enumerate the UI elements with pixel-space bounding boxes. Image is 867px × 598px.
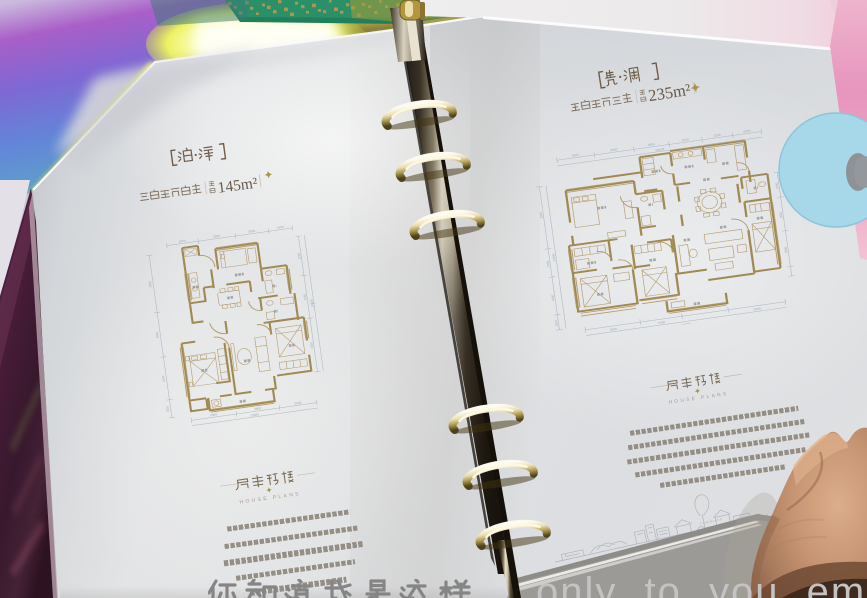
svg-text:3600: 3600 — [213, 234, 221, 239]
svg-text:3300: 3300 — [658, 320, 666, 325]
svg-text:1800: 1800 — [647, 142, 655, 147]
svg-text:3000: 3000 — [210, 412, 218, 417]
svg-text:2050: 2050 — [743, 129, 751, 134]
svg-text:4000: 4000 — [609, 327, 617, 332]
svg-text:235m²: 235m² — [647, 80, 692, 105]
svg-text:2050: 2050 — [178, 239, 186, 244]
svg-text:10500: 10500 — [250, 412, 260, 417]
svg-text:3600: 3600 — [294, 401, 302, 406]
svg-text:3050: 3050 — [155, 331, 160, 338]
svg-text:4430: 4430 — [161, 375, 166, 382]
svg-text:2150: 2150 — [681, 137, 689, 142]
svg-text:2600: 2600 — [571, 153, 579, 158]
svg-text:3200: 3200 — [713, 133, 721, 138]
svg-text:2550: 2550 — [148, 281, 153, 288]
svg-text:3400: 3400 — [753, 307, 761, 312]
svg-text:2950: 2950 — [610, 147, 618, 152]
svg-text:18100: 18100 — [655, 147, 665, 152]
svg-text:3900: 3900 — [254, 406, 262, 411]
svg-text:1530: 1530 — [165, 405, 170, 412]
